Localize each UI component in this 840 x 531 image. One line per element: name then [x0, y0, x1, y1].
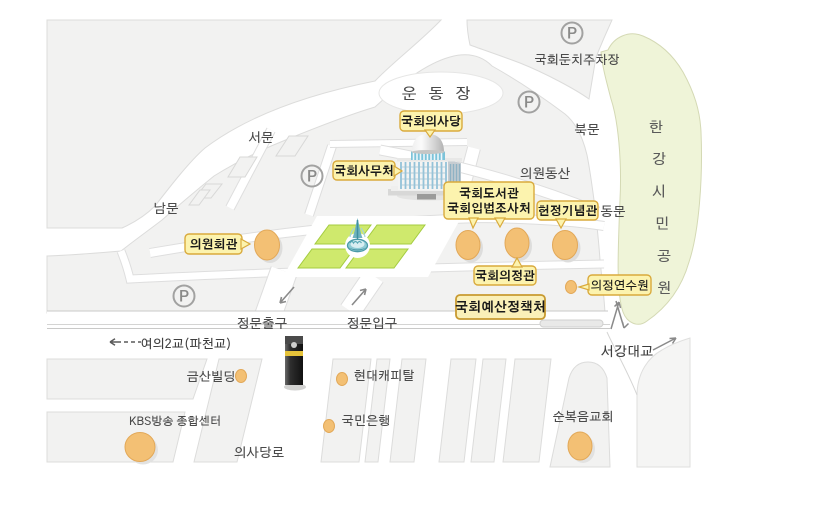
svg-text:국회예산정책처: 국회예산정책처	[455, 300, 546, 315]
svg-text:P: P	[307, 170, 317, 186]
svg-text:국회의정관: 국회의정관	[475, 269, 535, 283]
svg-text:국회의사당: 국회의사당	[401, 114, 461, 128]
svg-text:국회도서관: 국회도서관	[459, 186, 519, 200]
svg-text:서문: 서문	[248, 131, 274, 145]
svg-text:국회사무처: 국회사무처	[334, 164, 394, 178]
svg-text:금산빌딩: 금산빌딩	[187, 370, 236, 384]
svg-text:북문: 북문	[574, 123, 600, 137]
svg-text:P: P	[567, 27, 577, 43]
svg-text:강: 강	[652, 151, 666, 167]
svg-text:국회둔치주차장: 국회둔치주차장	[534, 53, 620, 67]
svg-text:순복음교회: 순복음교회	[553, 410, 614, 424]
svg-text:동문: 동문	[600, 206, 626, 219]
svg-text:남문: 남문	[153, 202, 179, 216]
svg-text:의사당로: 의사당로	[234, 446, 285, 460]
svg-text:현대캐피탈: 현대캐피탈	[354, 368, 416, 383]
svg-text:KBS방송 종합센터: KBS방송 종합센터	[129, 414, 221, 428]
svg-text:P: P	[524, 96, 534, 112]
svg-text:공: 공	[657, 249, 671, 264]
svg-text:P: P	[179, 290, 189, 306]
svg-text:서강대교: 서강대교	[601, 344, 654, 359]
svg-text:원: 원	[657, 281, 671, 296]
svg-text:헌정기념관: 헌정기념관	[538, 204, 598, 218]
svg-text:의원회관: 의원회관	[190, 237, 238, 251]
svg-text:국민은행: 국민은행	[342, 414, 391, 428]
svg-text:국회입법조사처: 국회입법조사처	[447, 201, 531, 215]
svg-text:한: 한	[649, 120, 663, 135]
svg-text:정문입구: 정문입구	[347, 317, 398, 331]
svg-text:의원동산: 의원동산	[520, 167, 571, 181]
svg-text:민: 민	[655, 217, 669, 232]
svg-text:의정연수원: 의정연수원	[590, 278, 648, 292]
svg-text:시: 시	[652, 184, 666, 199]
svg-text:정문출구: 정문출구	[237, 317, 288, 331]
svg-text:여의2교(파천교): 여의2교(파천교)	[140, 337, 231, 351]
svg-text:운 동 장: 운 동 장	[402, 86, 475, 103]
